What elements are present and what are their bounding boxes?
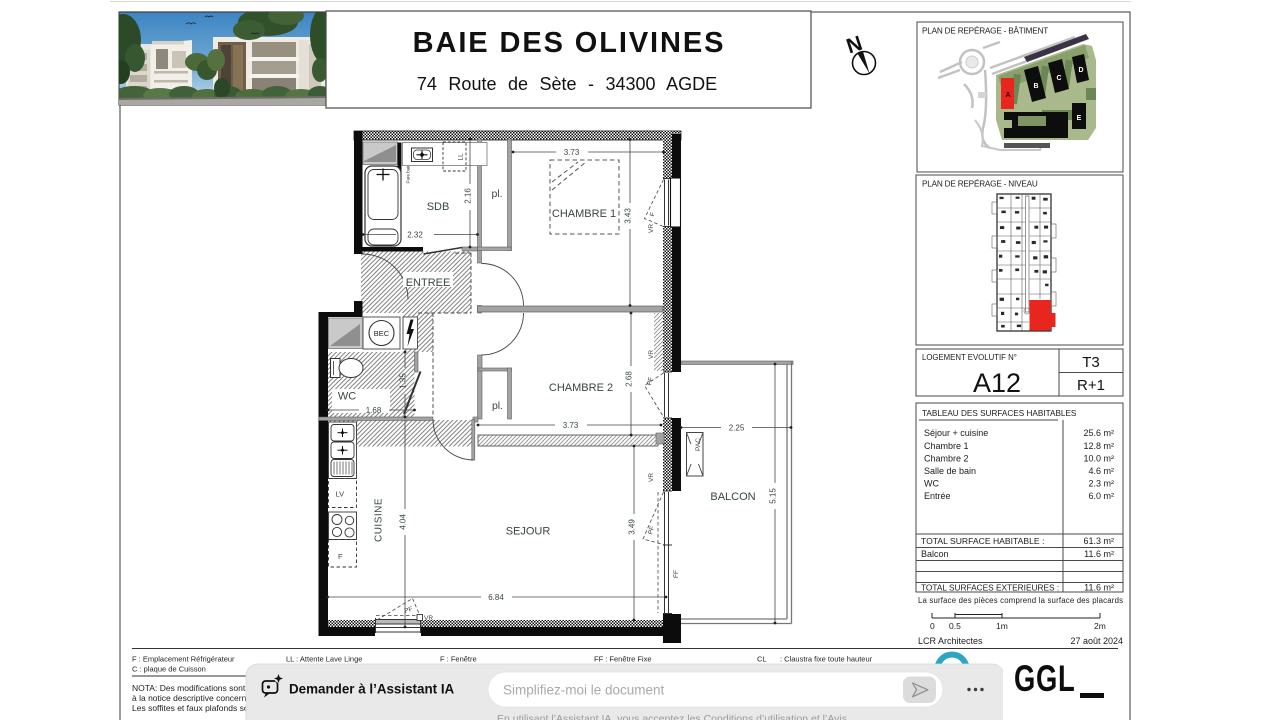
svg-text:3.43: 3.43 (624, 208, 633, 224)
svg-text:12.8 m²: 12.8 m² (1083, 441, 1114, 451)
svg-text:La surface des pièces comprend: La surface des pièces comprend la surfac… (918, 596, 1123, 605)
svg-text:LV: LV (336, 490, 345, 499)
svg-text:VR: VR (648, 473, 655, 482)
svg-text:Entrée: Entrée (924, 491, 951, 501)
svg-text:pl.: pl. (492, 400, 503, 412)
svg-text:Chambre 1: Chambre 1 (924, 441, 969, 451)
svg-text:BEC: BEC (374, 329, 390, 338)
svg-text:10.0 m²: 10.0 m² (1083, 454, 1114, 464)
svg-text:VR: VR (648, 224, 655, 233)
svg-text:4.04: 4.04 (399, 514, 408, 530)
svg-text:PLAN DE REPÉRAGE - NIVEAU: PLAN DE REPÉRAGE - NIVEAU (922, 179, 1038, 189)
svg-text:LL : Attente Lave Linge: LL : Attente Lave Linge (286, 655, 362, 664)
svg-text:ENTREE: ENTREE (406, 277, 451, 289)
svg-text:VR: VR (648, 350, 655, 359)
svg-text:Séjour + cuisine: Séjour + cuisine (924, 428, 988, 438)
svg-text:Salle de bain: Salle de bain (924, 466, 976, 476)
svg-text:R+1: R+1 (1077, 377, 1105, 394)
svg-text:74 Route de Sète - 34300 AGDE: 74 Route de Sète - 34300 AGDE (417, 74, 717, 94)
svg-text:Chambre 2: Chambre 2 (924, 454, 969, 464)
svg-text:4.6 m²: 4.6 m² (1088, 466, 1114, 476)
svg-text:3.73: 3.73 (564, 148, 580, 157)
svg-text:FF: FF (673, 570, 680, 578)
svg-text:Demander à l’Assistant IA: Demander à l’Assistant IA (289, 682, 455, 697)
svg-text:C : plaque de Cuisson: C : plaque de Cuisson (132, 665, 206, 674)
svg-text:3.49: 3.49 (628, 519, 637, 535)
svg-text:A12: A12 (973, 368, 1021, 398)
svg-text:1.35: 1.35 (399, 373, 408, 389)
svg-text:2.68: 2.68 (625, 371, 634, 387)
svg-text:3.73: 3.73 (563, 421, 579, 430)
svg-text:pl.: pl. (491, 188, 502, 200)
svg-text:2m: 2m (1094, 621, 1106, 631)
svg-text:En utilisant l’Assistant IA, v: En utilisant l’Assistant IA, vous accept… (497, 713, 847, 720)
svg-text:27 août 2024: 27 août 2024 (1070, 636, 1123, 646)
svg-text:SDB: SDB (427, 201, 450, 213)
svg-text:1m: 1m (996, 621, 1008, 631)
svg-text:WC: WC (338, 391, 356, 403)
svg-text:Pare bain: Pare bain (406, 164, 411, 184)
svg-text:61.3 m²: 61.3 m² (1083, 536, 1114, 546)
svg-text:FF : Fenêtre Fixe: FF : Fenêtre Fixe (594, 655, 652, 664)
svg-text:BAIE DES OLIVINES: BAIE DES OLIVINES (413, 27, 726, 59)
svg-text:1.68: 1.68 (366, 406, 382, 415)
svg-text:F : Fenêtre: F : Fenêtre (440, 655, 477, 664)
svg-text:B: B (1033, 83, 1038, 90)
svg-text:VR: VR (424, 615, 433, 622)
svg-text:BALCON: BALCON (710, 491, 755, 503)
svg-text:CL: CL (757, 655, 767, 664)
svg-text:2.16: 2.16 (464, 188, 473, 204)
svg-text:CUISINE: CUISINE (374, 498, 385, 542)
svg-text:C: C (1056, 75, 1061, 82)
svg-text:A: A (1005, 92, 1010, 99)
svg-text:T3: T3 (1082, 354, 1100, 371)
svg-text:F: F (338, 552, 343, 561)
svg-text:11.6 m²: 11.6 m² (1084, 583, 1114, 593)
svg-text:2.3 m²: 2.3 m² (1088, 479, 1114, 489)
svg-text:5.15: 5.15 (769, 488, 778, 504)
svg-text:6.84: 6.84 (488, 593, 504, 602)
svg-text:11.6 m²: 11.6 m² (1084, 549, 1114, 559)
svg-text:CHAMBRE 2: CHAMBRE 2 (549, 382, 613, 394)
svg-text:25.6 m²: 25.6 m² (1083, 428, 1114, 438)
svg-text:SEJOUR: SEJOUR (506, 526, 551, 538)
svg-text:LCR Architectes: LCR Architectes (918, 636, 983, 646)
svg-text:D: D (1078, 67, 1083, 74)
svg-text:TOTAL SURFACE HABITABLE :: TOTAL SURFACE HABITABLE : (921, 536, 1044, 546)
svg-text:LL: LL (458, 153, 465, 161)
svg-text:PAC: PAC (695, 438, 702, 451)
svg-text:E: E (1077, 115, 1082, 122)
svg-text:F : Emplacement Réfrigérateur: F : Emplacement Réfrigérateur (132, 655, 235, 664)
svg-text:2.25: 2.25 (729, 424, 745, 433)
svg-text:6.0 m²: 6.0 m² (1088, 491, 1114, 501)
svg-text:: Claustra fixe toute hauteur: : Claustra fixe toute hauteur (780, 655, 873, 664)
svg-text:2.32: 2.32 (407, 231, 423, 240)
svg-text:CHAMBRE 1: CHAMBRE 1 (552, 208, 616, 220)
svg-text:0.5: 0.5 (949, 621, 961, 631)
svg-text:0: 0 (930, 621, 935, 631)
svg-text:GGL: GGL (1014, 658, 1076, 699)
svg-text:Balcon: Balcon (921, 549, 949, 559)
svg-text:TOTAL SURFACES EXTERIEURES :: TOTAL SURFACES EXTERIEURES : (921, 583, 1059, 593)
svg-text:LOGEMENT EVOLUTIF N°: LOGEMENT EVOLUTIF N° (922, 353, 1017, 362)
svg-text:PLAN DE REPÉRAGE - BÂTIMENT: PLAN DE REPÉRAGE - BÂTIMENT (922, 26, 1048, 36)
svg-text:TABLEAU DES SURFACES HABITABLE: TABLEAU DES SURFACES HABITABLES (922, 409, 1077, 418)
svg-text:Simplifiez-moi le document: Simplifiez-moi le document (503, 683, 665, 698)
svg-text:WC: WC (924, 479, 939, 489)
